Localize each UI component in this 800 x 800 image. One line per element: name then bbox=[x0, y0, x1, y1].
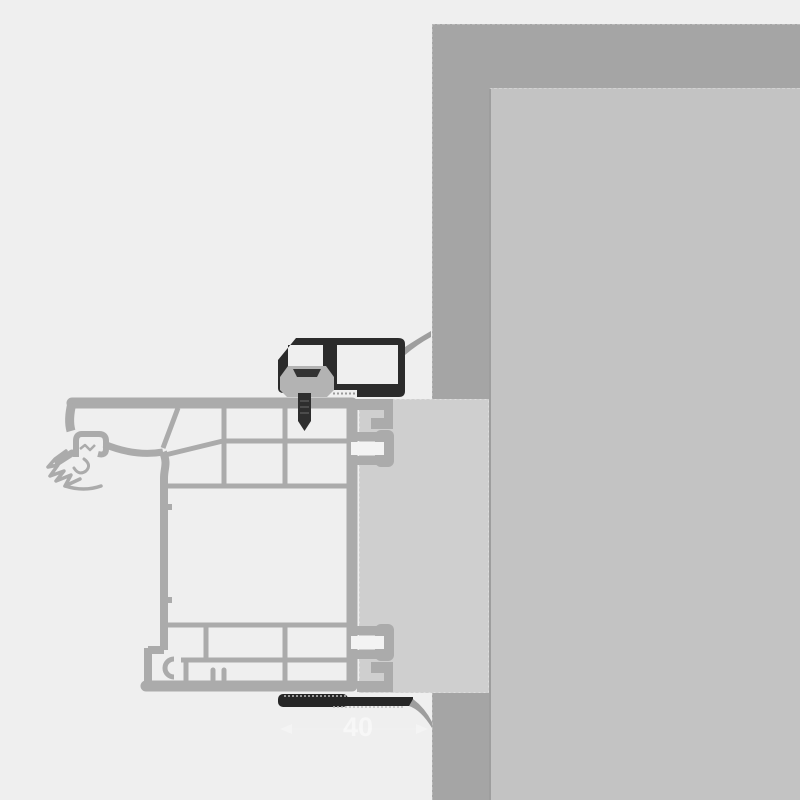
frame-profile bbox=[48, 399, 352, 687]
dimension-arrow-left bbox=[280, 724, 292, 734]
fixing-clip-hatch bbox=[293, 369, 321, 377]
seal-curl bbox=[74, 459, 89, 473]
membrane-swoosh-top bbox=[405, 331, 431, 355]
web-diagonal bbox=[163, 408, 178, 448]
frame-left-edge bbox=[70, 403, 72, 431]
bottom-trim-tail bbox=[344, 697, 413, 706]
anchor-t-bottom-slot bbox=[351, 636, 384, 649]
screw-tip bbox=[298, 421, 311, 431]
seal-tail bbox=[65, 486, 101, 489]
chamber-tab-lower bbox=[164, 597, 172, 603]
dimension-arrow-right bbox=[416, 724, 428, 734]
chamber-left-wall bbox=[163, 452, 166, 650]
membrane-swoosh-bottom bbox=[409, 699, 432, 728]
dimension-annotation: 40 bbox=[280, 712, 428, 742]
sill-sweep bbox=[104, 444, 163, 453]
window-installation-cross-section: 40 bbox=[0, 0, 800, 800]
dimension-label: 40 bbox=[343, 712, 373, 742]
anchor-t-top-slot bbox=[351, 442, 384, 455]
web-row-divider-1 bbox=[161, 441, 349, 456]
chamber-tab-upper bbox=[164, 504, 172, 510]
gasket-groove-arch bbox=[76, 434, 106, 457]
profile-drawing: 40 bbox=[0, 0, 800, 800]
screw-port-channel bbox=[165, 659, 174, 677]
gasket-groove-teeth bbox=[80, 445, 95, 450]
